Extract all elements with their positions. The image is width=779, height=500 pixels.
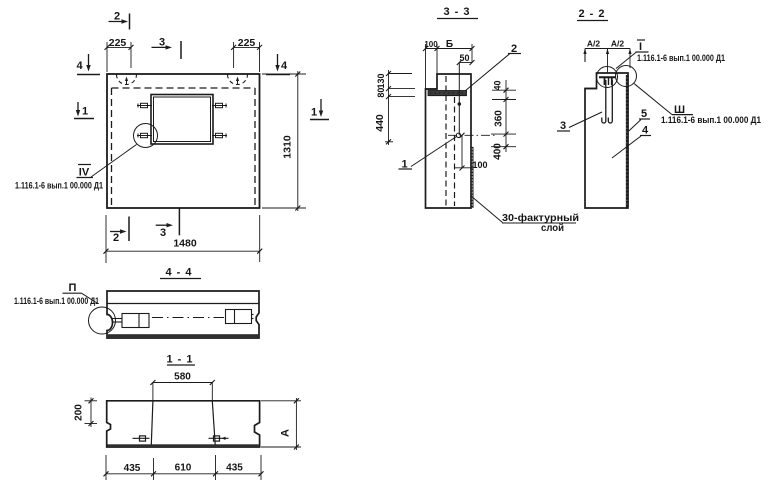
svg-text:1 - 1: 1 - 1 <box>166 354 193 366</box>
svg-text:2 - 2: 2 - 2 <box>578 8 605 20</box>
svg-text:слой: слой <box>541 223 564 234</box>
svg-text:1310: 1310 <box>282 135 294 159</box>
svg-text:100: 100 <box>472 160 487 170</box>
svg-text:435: 435 <box>124 463 141 474</box>
svg-text:IV: IV <box>79 167 90 179</box>
svg-text:360: 360 <box>494 110 505 127</box>
svg-text:610: 610 <box>175 463 192 474</box>
svg-text:4: 4 <box>642 125 649 137</box>
svg-text:3: 3 <box>560 120 566 132</box>
svg-text:1480: 1480 <box>173 238 197 250</box>
svg-text:1: 1 <box>311 107 317 119</box>
svg-text:А/2: А/2 <box>611 39 625 49</box>
svg-text:1.116.1-6 вып.1 00.000 Д1: 1.116.1-6 вып.1 00.000 Д1 <box>661 115 761 125</box>
svg-text:200: 200 <box>74 404 85 421</box>
svg-text:40: 40 <box>493 80 503 90</box>
svg-text:100: 100 <box>424 40 438 49</box>
svg-text:4: 4 <box>281 60 288 72</box>
svg-text:50: 50 <box>459 53 469 63</box>
svg-text:4: 4 <box>76 60 83 72</box>
svg-text:400: 400 <box>493 143 504 160</box>
svg-text:А/2: А/2 <box>587 39 601 49</box>
svg-text:П: П <box>69 282 77 294</box>
svg-text:130: 130 <box>376 73 386 88</box>
svg-text:225: 225 <box>109 37 127 49</box>
svg-text:1.116.1-6 вып.1 00.000 Д1: 1.116.1-6 вып.1 00.000 Д1 <box>14 296 99 306</box>
svg-text:80: 80 <box>376 88 386 98</box>
svg-text:440: 440 <box>374 114 386 132</box>
svg-text:435: 435 <box>226 463 243 474</box>
svg-text:3 - 3: 3 - 3 <box>443 6 470 18</box>
svg-text:1: 1 <box>82 106 88 118</box>
svg-text:I: I <box>639 41 642 53</box>
svg-text:3: 3 <box>159 37 165 49</box>
svg-text:1.116.1-6 вып.1 00.000 Д1: 1.116.1-6 вып.1 00.000 Д1 <box>15 181 103 191</box>
svg-text:Б: Б <box>446 39 453 50</box>
svg-text:2: 2 <box>114 11 120 23</box>
svg-text:2: 2 <box>113 232 119 244</box>
svg-text:5: 5 <box>641 108 647 120</box>
svg-text:1.116.1-6 вып.1 00.000 Д1: 1.116.1-6 вып.1 00.000 Д1 <box>637 53 725 63</box>
svg-text:580: 580 <box>174 372 191 383</box>
svg-text:3: 3 <box>160 227 166 239</box>
svg-text:А: А <box>280 429 292 437</box>
svg-text:4 - 4: 4 - 4 <box>165 267 192 279</box>
svg-text:225: 225 <box>238 37 256 49</box>
